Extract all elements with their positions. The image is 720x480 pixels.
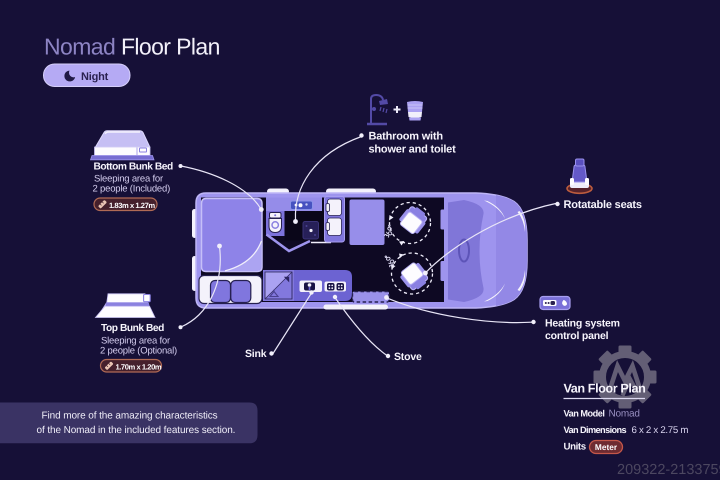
svg-text:Nomad Floor Plan: Nomad Floor Plan [44,34,220,60]
svg-text:2 people (Optional): 2 people (Optional) [100,346,177,357]
svg-text:shower and toilet: shower and toilet [369,144,457,156]
svg-text:Heating system: Heating system [545,318,620,330]
svg-text:Van Dimensions: Van Dimensions [564,425,627,435]
svg-text:6 x 2 x 2.75 m: 6 x 2 x 2.75 m [632,425,689,436]
svg-text:Night: Night [81,71,109,83]
svg-text:control panel: control panel [545,330,609,342]
svg-text:Stove: Stove [394,351,422,363]
svg-text:Bottom Bunk Bed: Bottom Bunk Bed [94,162,173,173]
svg-text:Van Floor Plan: Van Floor Plan [564,382,646,396]
svg-text:Rotatable seats: Rotatable seats [564,199,642,211]
svg-text:2 people (Included): 2 people (Included) [93,184,171,195]
svg-text:1.70m x 1.20m: 1.70m x 1.20m [116,363,162,372]
svg-text:Bathroom with: Bathroom with [369,131,444,143]
svg-text:1.83m x 1.27m: 1.83m x 1.27m [109,201,155,210]
svg-text:Find more of the amazing chara: Find more of the amazing characteristics [42,411,218,422]
svg-text:Sink: Sink [245,348,267,360]
svg-text:Units: Units [564,442,586,453]
svg-text:Nomad: Nomad [609,409,640,420]
svg-text:of the Nomad in the included f: of the Nomad in the included features se… [37,425,236,436]
svg-text:209322-21337592: 209322-21337592 [617,462,720,478]
svg-text:Meter: Meter [595,442,618,452]
svg-text:Van Model: Van Model [564,409,605,419]
svg-text:Top Bunk Bed: Top Bunk Bed [101,323,164,334]
